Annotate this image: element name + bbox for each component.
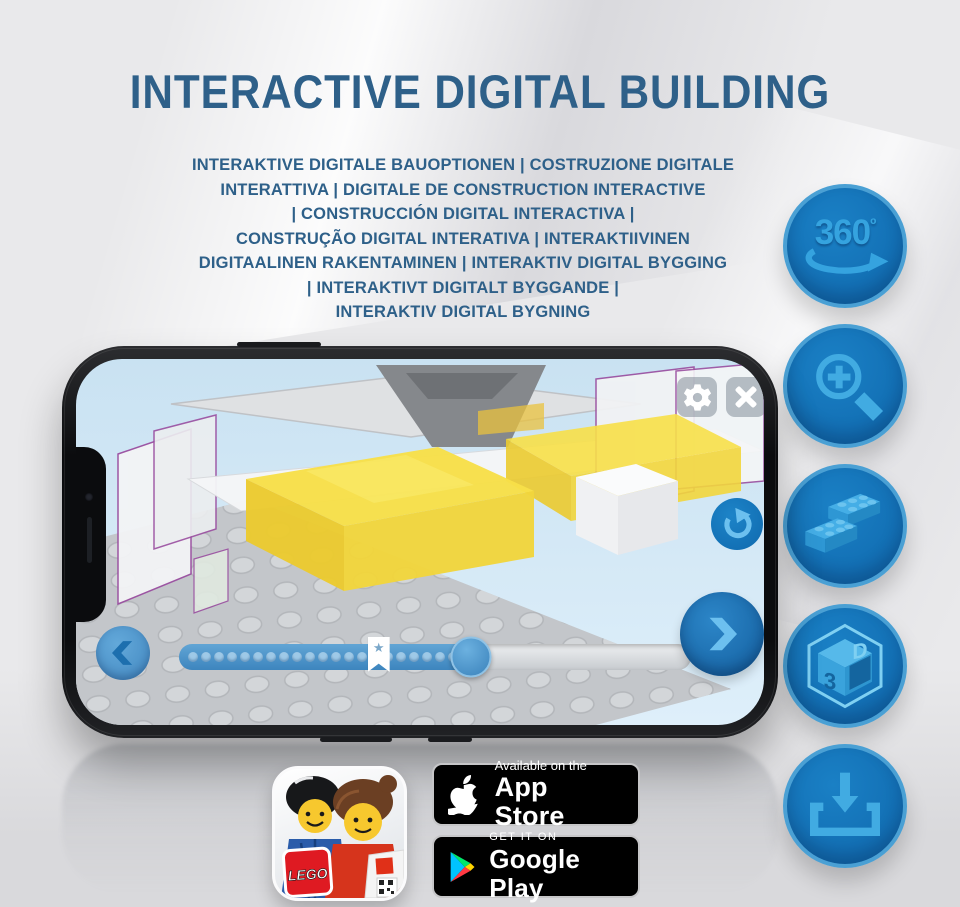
progress-dot bbox=[188, 652, 198, 662]
progress-dot bbox=[344, 652, 354, 662]
feature-badge-bricks bbox=[783, 464, 907, 588]
progress-dot bbox=[435, 652, 445, 662]
phone-reflection bbox=[62, 744, 778, 894]
progress-dot bbox=[240, 652, 250, 662]
apple-icon bbox=[448, 775, 482, 815]
svg-text:3: 3 bbox=[824, 668, 837, 695]
phone-mockup: ★ bbox=[62, 346, 778, 738]
app-store-tagline: Available on the bbox=[495, 758, 624, 773]
phone-side-button bbox=[428, 737, 472, 742]
close-button[interactable] bbox=[726, 377, 764, 417]
progress-dot bbox=[279, 652, 289, 662]
app-store-badge[interactable]: Available on the App Store bbox=[432, 763, 640, 826]
speaker-grille bbox=[87, 517, 92, 563]
page-title: INTERACTIVE DIGITAL BUILDING bbox=[48, 64, 912, 119]
front-camera bbox=[85, 493, 93, 501]
progress-fill bbox=[179, 644, 471, 670]
previous-step-button[interactable] bbox=[96, 626, 150, 680]
cube-3d-icon: 3 D bbox=[800, 621, 890, 711]
progress-dot bbox=[409, 652, 419, 662]
phone-volume-button bbox=[237, 342, 321, 347]
progress-dot bbox=[201, 652, 211, 662]
build-progress-slider[interactable]: ★ bbox=[179, 644, 691, 670]
lego-app-icon[interactable]: LEGO bbox=[272, 766, 407, 901]
progress-dot bbox=[227, 652, 237, 662]
lego-logo: LEGO bbox=[287, 865, 328, 884]
multilingual-subtitle: INTERAKTIVE DIGITALE BAUOPTIONEN | COSTR… bbox=[140, 153, 786, 325]
lego-brick-icon bbox=[799, 484, 891, 568]
download-icon bbox=[803, 771, 887, 841]
app-store-name: App Store bbox=[495, 773, 624, 831]
subtitle-line: INTERAKTIVE DIGITALE BAUOPTIONEN | COSTR… bbox=[140, 153, 786, 178]
settings-button[interactable] bbox=[677, 377, 717, 417]
feature-badge-zoom bbox=[783, 324, 907, 448]
phone-side-button bbox=[320, 737, 392, 742]
subtitle-line: INTERAKTIV DIGITAL BYGNING bbox=[140, 300, 786, 325]
lego-3d-build-viewport[interactable] bbox=[76, 359, 764, 725]
progress-dot bbox=[305, 652, 315, 662]
progress-dot bbox=[422, 652, 432, 662]
google-play-tagline: GET IT ON bbox=[489, 830, 624, 845]
subtitle-line: INTERATTIVA | DIGITALE DE CONSTRUCTION I… bbox=[140, 178, 786, 203]
next-step-button[interactable] bbox=[680, 592, 764, 676]
progress-dot bbox=[266, 652, 276, 662]
lego-minifigures-art: LEGO bbox=[275, 769, 404, 898]
app-screen: ★ bbox=[76, 359, 764, 725]
promo-page: INTERACTIVE DIGITAL BUILDING INTERAKTIVE… bbox=[0, 0, 960, 907]
svg-text:D: D bbox=[852, 638, 867, 664]
progress-dot bbox=[396, 652, 406, 662]
chevron-right-icon bbox=[707, 616, 737, 652]
subtitle-line: CONSTRUÇÃO DIGITAL INTERATIVA | INTERAKT… bbox=[140, 227, 786, 252]
google-play-name: Google Play bbox=[489, 845, 624, 903]
progress-dot bbox=[253, 652, 263, 662]
phone-notch bbox=[76, 447, 106, 622]
feature-badge-3d: 3 D bbox=[783, 604, 907, 728]
progress-dot bbox=[214, 652, 224, 662]
subtitle-line: | INTERAKTIVT DIGITALT BYGGANDE | bbox=[140, 276, 786, 301]
gear-icon bbox=[684, 384, 711, 411]
progress-slider-handle[interactable] bbox=[450, 637, 491, 678]
chevron-left-icon bbox=[112, 640, 134, 666]
reset-rotation-icon bbox=[720, 507, 754, 541]
progress-dot bbox=[357, 652, 367, 662]
rotate-360-icon: 360º bbox=[801, 210, 889, 283]
feature-badge-download bbox=[783, 744, 907, 868]
progress-dot bbox=[318, 652, 328, 662]
close-icon bbox=[733, 384, 759, 410]
zoom-in-icon bbox=[806, 347, 884, 425]
progress-dot bbox=[331, 652, 341, 662]
progress-dot bbox=[292, 652, 302, 662]
google-play-badge[interactable]: GET IT ON Google Play bbox=[432, 835, 640, 898]
reset-view-button[interactable] bbox=[711, 498, 763, 550]
feature-badge-360: 360º bbox=[783, 184, 907, 308]
subtitle-line: DIGITAALINEN RAKENTAMINEN | INTERAKTIV D… bbox=[140, 251, 786, 276]
google-play-icon bbox=[448, 849, 476, 885]
subtitle-line: | CONSTRUCCIÓN DIGITAL INTERACTIVA | bbox=[140, 202, 786, 227]
